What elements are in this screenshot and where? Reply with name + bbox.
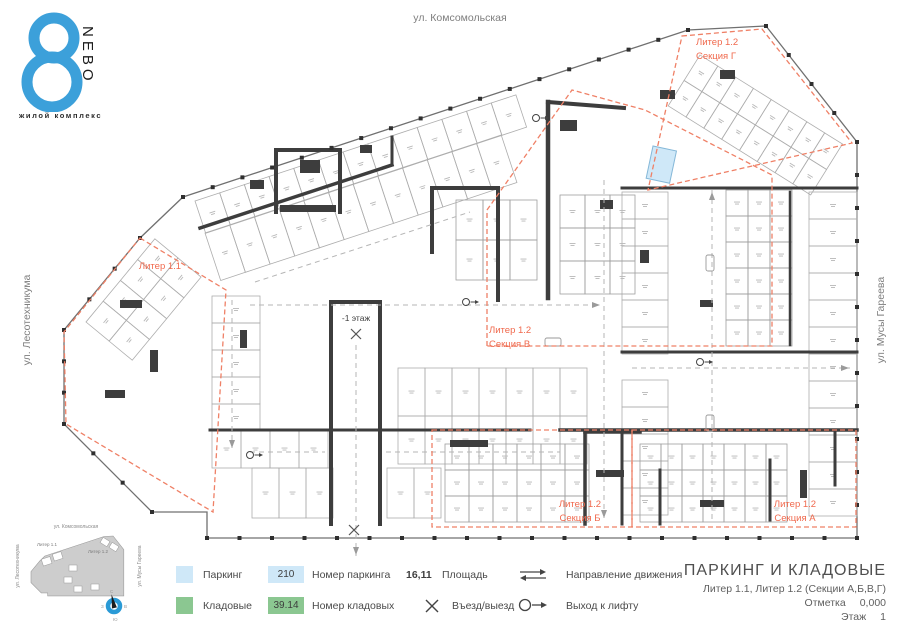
stall-text [491, 441, 495, 442]
stall-text [575, 458, 579, 459]
stall-text [544, 439, 550, 440]
stall-text [753, 508, 759, 509]
column-marker [359, 136, 363, 140]
stall-text [571, 391, 577, 392]
column-marker [537, 77, 541, 81]
stall-text [574, 456, 580, 457]
stall-text [527, 510, 531, 511]
stall-text [734, 254, 740, 255]
stall-text [757, 282, 761, 283]
wall-block [660, 90, 675, 99]
stall-text [596, 212, 600, 213]
stall-text [830, 393, 836, 394]
column-marker [627, 48, 631, 52]
stall-text [734, 228, 740, 229]
stall-text [757, 204, 761, 205]
column-marker [508, 87, 512, 91]
stall-text [436, 391, 442, 392]
stall-text [642, 231, 648, 232]
stall-text [670, 484, 674, 485]
stall-text [526, 482, 532, 483]
stall-text [233, 389, 239, 390]
stall-text [621, 212, 625, 213]
compass-s: Ю [113, 617, 118, 622]
column-marker [855, 239, 859, 243]
stall-text [778, 228, 784, 229]
stall-text [550, 482, 556, 483]
wall-block [560, 120, 577, 131]
stall-text [642, 204, 648, 205]
stall-text [455, 484, 459, 485]
section-label-v-line1: Литер 1.2 [489, 325, 531, 336]
stall-text [690, 508, 696, 509]
stall-text [479, 484, 483, 485]
stall-text [735, 282, 739, 283]
stall-text [732, 508, 738, 509]
wall-block [240, 330, 247, 348]
stall-text [831, 503, 835, 504]
stall-text [669, 508, 675, 509]
stall-text [463, 439, 469, 440]
stall-text [290, 492, 296, 493]
stall-text [454, 456, 460, 457]
section-label-liter11: Литер 1.1 [139, 261, 181, 272]
column-marker [855, 536, 859, 540]
area-label: Площадь [442, 569, 488, 581]
stall-text [254, 450, 258, 451]
column-marker [62, 422, 66, 426]
stall-text [490, 439, 496, 440]
stall-text [409, 439, 415, 440]
stall-text [502, 482, 508, 483]
stall-text [643, 394, 647, 395]
stall-text [643, 475, 647, 476]
stall-text [225, 450, 229, 451]
stall-text [318, 494, 322, 495]
stall-text [545, 393, 549, 394]
stall-text [779, 282, 783, 283]
stall-text [642, 419, 648, 420]
stall-text [596, 278, 600, 279]
stall-text [468, 221, 472, 222]
section-label-b-line2: Секция Б [559, 513, 600, 524]
column-marker [832, 111, 836, 115]
column-marker [303, 536, 307, 540]
stall-text [575, 484, 579, 485]
lane-arrow [353, 547, 359, 555]
stall-text [643, 421, 647, 422]
stall-text [642, 312, 648, 313]
storage-number-box: 39.14 [268, 597, 304, 614]
stall-text [478, 456, 484, 457]
column-marker [433, 536, 437, 540]
stall-text [778, 332, 784, 333]
stall-text [830, 312, 836, 313]
wall-block [596, 470, 624, 477]
stall-text [754, 510, 758, 511]
stall-text [735, 256, 739, 257]
stall-text [690, 482, 696, 483]
column-marker [725, 536, 729, 540]
column-marker [758, 536, 762, 540]
stall-text [643, 206, 647, 207]
wall-block [450, 440, 488, 447]
stall-text [831, 422, 835, 423]
column-marker [660, 536, 664, 540]
column-marker [855, 305, 859, 309]
stall-text [830, 339, 836, 340]
stall-text [712, 484, 716, 485]
column-marker [150, 510, 154, 514]
stall-text [756, 254, 762, 255]
wall-block [360, 145, 372, 153]
wall-block [700, 300, 713, 307]
entry-exit-icon [424, 598, 440, 614]
column-marker [764, 24, 768, 28]
stall-text [649, 510, 653, 511]
stall-text [831, 287, 835, 288]
column-marker [478, 97, 482, 101]
stall-text [517, 439, 523, 440]
stall-text [831, 260, 835, 261]
stall-text [233, 308, 239, 309]
column-marker [855, 140, 859, 144]
stall-text [690, 456, 696, 457]
stall-text [775, 458, 779, 459]
column-marker [181, 195, 185, 199]
stall-text [467, 219, 473, 220]
minimap: ул. Комсомольская ул. Лесотехникума ул. … [6, 518, 156, 636]
parking-swatch [176, 566, 193, 583]
stall-text [526, 508, 532, 509]
stall-text [234, 337, 238, 338]
stall-text [234, 310, 238, 311]
stall-text [642, 446, 648, 447]
stall-text [778, 254, 784, 255]
column-marker [448, 107, 452, 111]
stall-text [595, 243, 601, 244]
section-label-b-line1: Литер 1.2 [559, 499, 601, 510]
stall-text [669, 482, 675, 483]
stall-text [454, 508, 460, 509]
stall-text [643, 314, 647, 315]
mark-value: 0,000 [860, 597, 886, 609]
stall-text [398, 492, 404, 493]
stall-text [753, 456, 759, 457]
stall-text [670, 510, 674, 511]
stall-text [831, 395, 835, 396]
stall-text [711, 456, 717, 457]
column-marker [628, 536, 632, 540]
stall-text [779, 256, 783, 257]
column-marker [597, 57, 601, 61]
wall-block [105, 390, 125, 398]
stall-text [756, 306, 762, 307]
stall-text [642, 473, 648, 474]
column-marker [335, 536, 339, 540]
column-marker [855, 338, 859, 342]
stall-text [544, 391, 550, 392]
stall-text [830, 366, 836, 367]
stall-text [399, 494, 403, 495]
stall-text [779, 230, 783, 231]
stall-text [778, 202, 784, 203]
stall-text [426, 494, 430, 495]
stall-text [317, 492, 323, 493]
stall-text [312, 450, 316, 451]
column-marker [300, 156, 304, 160]
stall-text [830, 204, 836, 205]
stall-text [779, 308, 783, 309]
stall-text [233, 362, 239, 363]
stall-text [779, 204, 783, 205]
stall-text [732, 482, 738, 483]
direction-icon [518, 567, 548, 583]
stall-text [621, 278, 625, 279]
section-label-a-line1: Литер 1.2 [774, 499, 816, 510]
stall-text [642, 500, 648, 501]
stall-text [518, 393, 522, 394]
column-marker [121, 481, 125, 485]
lift-exit-icon [518, 598, 550, 612]
column-marker [810, 82, 814, 86]
stall-text [735, 230, 739, 231]
stall-text [468, 261, 472, 262]
stall-text [734, 280, 740, 281]
stall-text [463, 391, 469, 392]
stall-text [649, 484, 653, 485]
stall-text [551, 484, 555, 485]
stall-text [831, 233, 835, 234]
stall-text [233, 335, 239, 336]
stall-text [779, 334, 783, 335]
stall-text [455, 458, 459, 459]
column-marker [790, 536, 794, 540]
stall-text [571, 278, 575, 279]
area-example: 16,11 [406, 569, 432, 581]
stall-text [754, 484, 758, 485]
stall-text [778, 306, 784, 307]
stall-text [643, 233, 647, 234]
stall-text [735, 308, 739, 309]
stall-text [224, 448, 230, 449]
stall-text [409, 391, 415, 392]
stall-text [596, 245, 600, 246]
stall-text [571, 245, 575, 246]
stall-text [831, 314, 835, 315]
stall-text [518, 441, 522, 442]
stall-text [643, 287, 647, 288]
stall-text [503, 458, 507, 459]
stall-text [550, 508, 556, 509]
stall-text [620, 243, 626, 244]
column-marker [270, 536, 274, 540]
parking-label: Паркинг [203, 569, 242, 581]
stall-text [756, 228, 762, 229]
minimap-street-top: ул. Комсомольская [54, 524, 99, 530]
minimap-street-left: ул. Лесотехникума [15, 544, 21, 587]
stall-text [756, 332, 762, 333]
column-marker [686, 28, 690, 32]
stall-text [551, 458, 555, 459]
stall-text [570, 276, 576, 277]
stall-text [526, 456, 532, 457]
stall-text [648, 508, 654, 509]
stall-text [502, 508, 508, 509]
stall-text [753, 482, 759, 483]
wall-block [300, 160, 320, 173]
stall-text [478, 508, 484, 509]
stall-text [491, 393, 495, 394]
stall-text [643, 341, 647, 342]
stall-text [757, 230, 761, 231]
column-marker [787, 53, 791, 57]
section-label-a-line2: Секция А [774, 513, 816, 524]
stall-text [648, 456, 654, 457]
column-marker [823, 536, 827, 540]
stall-text [455, 510, 459, 511]
stall-text [691, 484, 695, 485]
stall-text [711, 482, 717, 483]
stall-text [253, 448, 259, 449]
stall-text [233, 416, 239, 417]
plan-graphics [62, 24, 859, 556]
stall-text [733, 510, 737, 511]
column-marker [567, 67, 571, 71]
column-marker [205, 536, 209, 540]
stall-text [527, 484, 531, 485]
stall-text [757, 256, 761, 257]
stall-text [831, 206, 835, 207]
stall-text [732, 456, 738, 457]
floor-line: Этаж1 [586, 611, 886, 623]
storage-label: Кладовые [203, 600, 252, 612]
title-block: ПАРКИНГ И КЛАДОВЫЕ Литер 1.1, Литер 1.2 … [586, 562, 886, 623]
storage-number-label: Номер кладовых [312, 600, 394, 612]
stall-text [410, 393, 414, 394]
stall-text [757, 334, 761, 335]
column-marker [465, 536, 469, 540]
stall-text [454, 482, 460, 483]
stall-text [571, 212, 575, 213]
storage-swatch [176, 597, 193, 614]
column-marker [855, 404, 859, 408]
stall-text [756, 280, 762, 281]
column-marker [855, 371, 859, 375]
stall-text [595, 210, 601, 211]
column-marker [91, 451, 95, 455]
stall-text [733, 484, 737, 485]
stall-text [527, 458, 531, 459]
stall-text [282, 448, 288, 449]
stall-text [691, 510, 695, 511]
stall-text [643, 502, 647, 503]
stall-text [263, 492, 269, 493]
sheet-subtitle: Литер 1.1, Литер 1.2 (Секции А,Б,В,Г) [586, 583, 886, 595]
stall-text [522, 261, 526, 262]
stall-text [774, 456, 780, 457]
column-marker [368, 536, 372, 540]
ramp-label: -1 этаж [342, 313, 371, 323]
stall-text [620, 210, 626, 211]
mark-label: Отметка [805, 597, 846, 609]
stall-text [264, 494, 268, 495]
stall-text [234, 418, 238, 419]
stall-text [642, 339, 648, 340]
minimap-street-right: ул. Мусы Гареева [137, 545, 143, 586]
wall-block [600, 200, 613, 209]
stall-text [734, 332, 740, 333]
stall-text [711, 508, 717, 509]
minimap-liter11-label: Литер 1.1 [37, 542, 57, 547]
stall-text [521, 259, 527, 260]
stall-text [712, 458, 716, 459]
stall-text [291, 494, 295, 495]
wall-block [720, 70, 735, 79]
stall-text [234, 391, 238, 392]
wall-block [280, 205, 336, 212]
compass-w: З [101, 604, 104, 609]
stall-text [642, 392, 648, 393]
column-marker [693, 536, 697, 540]
stall-text [778, 280, 784, 281]
stall-text [464, 393, 468, 394]
column-marker [563, 536, 567, 540]
wall-block [640, 250, 649, 263]
column-marker [855, 206, 859, 210]
stall-text [669, 456, 675, 457]
column-marker [400, 536, 404, 540]
stall-text [436, 439, 442, 440]
column-marker [419, 116, 423, 120]
minimap-liter12-label: Литер 1.2 [88, 549, 108, 554]
stall-text [574, 482, 580, 483]
stall-text [830, 258, 836, 259]
section-label-v-line2: Секция В [489, 339, 530, 350]
column-marker [855, 173, 859, 177]
stall-text [437, 393, 441, 394]
stall-text [437, 441, 441, 442]
stall-text [649, 458, 653, 459]
page: NEBO жилой комплекс ул. Комсомольская ул… [0, 0, 900, 637]
stall-text [550, 456, 556, 457]
wall-block [150, 350, 158, 372]
stall-text [479, 510, 483, 511]
stall-text [830, 501, 836, 502]
stall-text [831, 341, 835, 342]
stall-text [234, 364, 238, 365]
floor-value: 1 [880, 611, 886, 623]
column-marker [238, 536, 242, 540]
stall-text [572, 441, 576, 442]
stall-text [735, 334, 739, 335]
stall-text [774, 482, 780, 483]
parking-number-label: Номер паркинга [312, 569, 390, 581]
stall-text [311, 448, 317, 449]
column-marker [595, 536, 599, 540]
stall-text [643, 448, 647, 449]
parking-number-box: 210 [268, 566, 304, 583]
stall-text [521, 219, 527, 220]
stall-text [621, 245, 625, 246]
wall-block [800, 470, 807, 498]
stall-text [503, 484, 507, 485]
stall-text [283, 450, 287, 451]
stall-text [522, 221, 526, 222]
column-marker [855, 272, 859, 276]
column-marker [498, 536, 502, 540]
stall-text [425, 492, 431, 493]
